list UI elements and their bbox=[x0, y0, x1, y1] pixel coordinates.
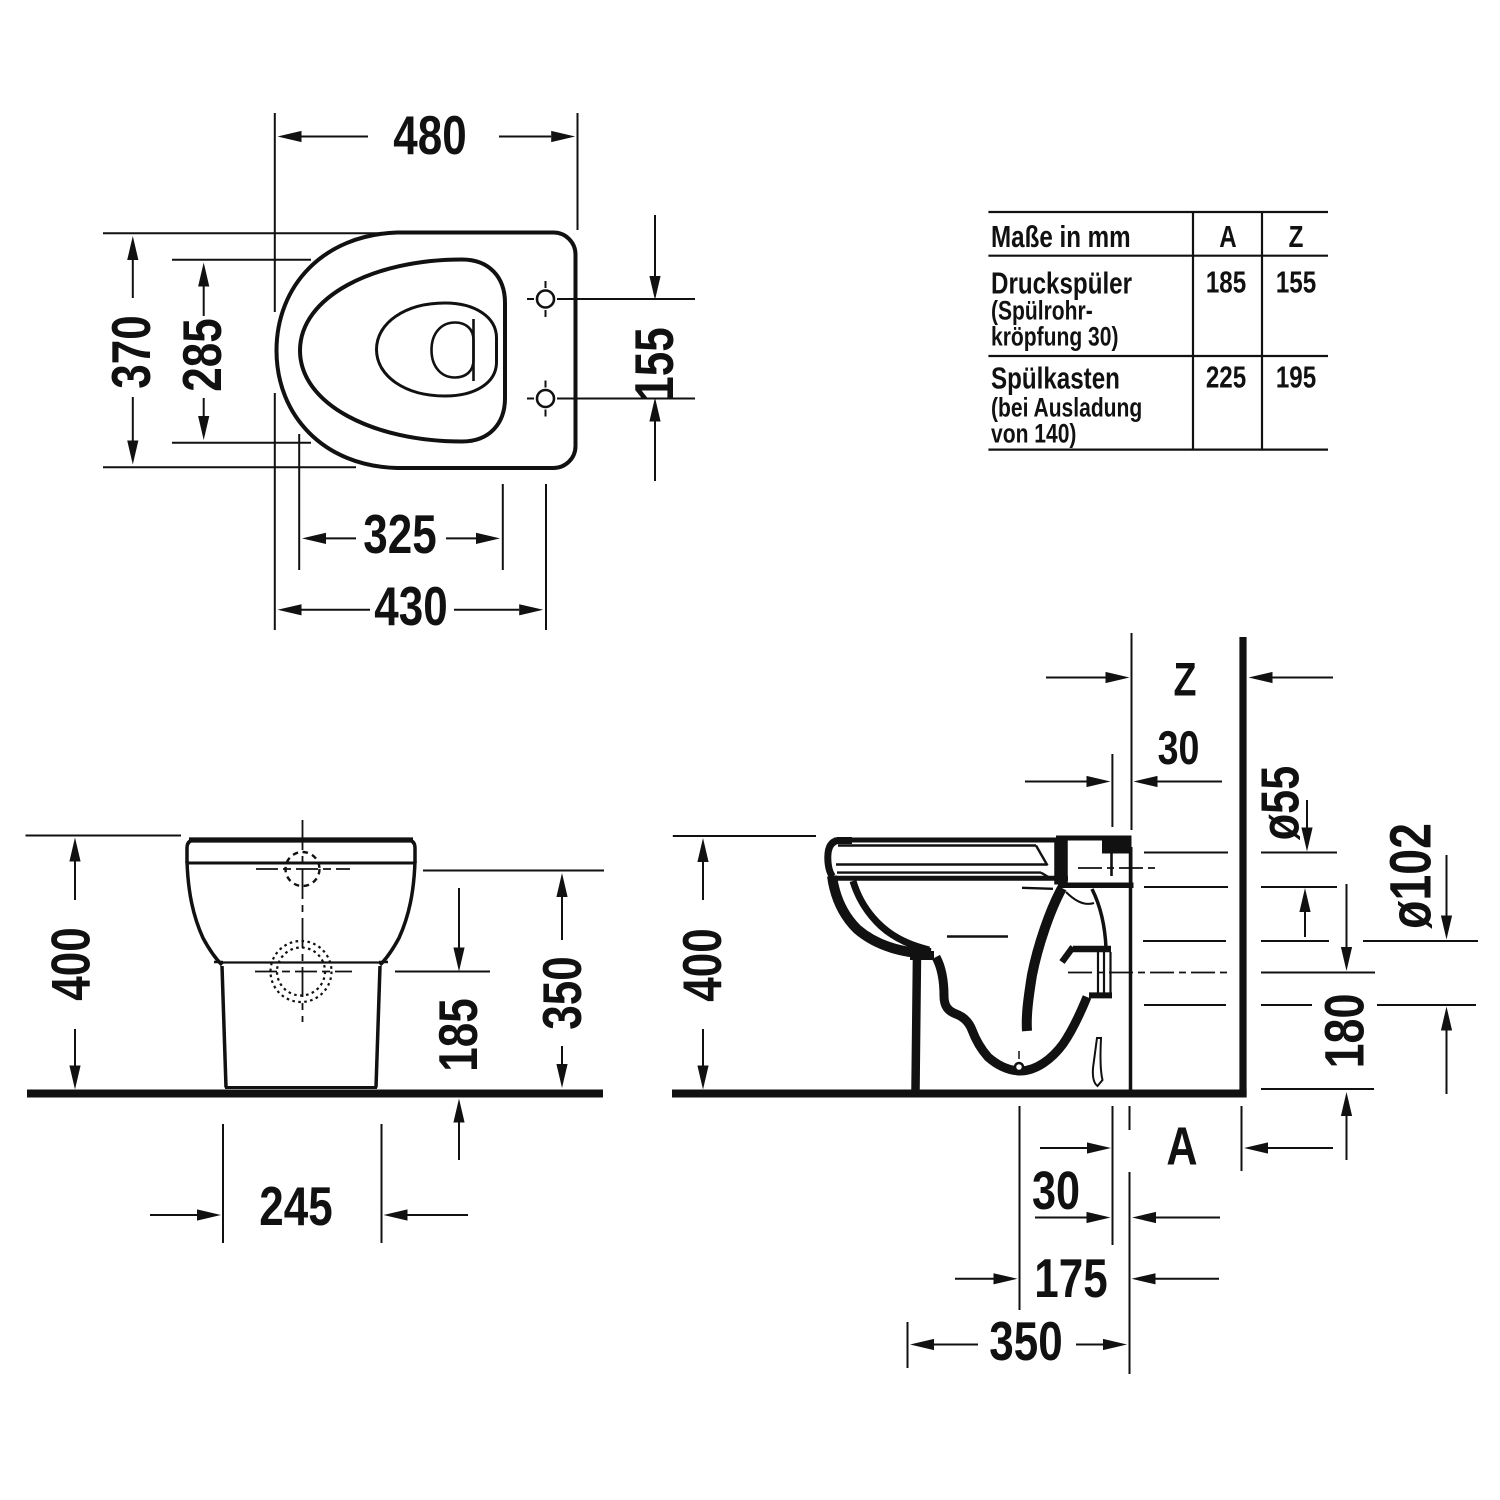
svg-text:185: 185 bbox=[427, 998, 489, 1071]
svg-text:30: 30 bbox=[1158, 722, 1200, 775]
svg-text:A: A bbox=[1166, 1117, 1197, 1177]
svg-text:A: A bbox=[1219, 219, 1236, 254]
svg-text:325: 325 bbox=[363, 503, 436, 565]
svg-text:von 140): von 140) bbox=[991, 419, 1076, 449]
svg-text:180: 180 bbox=[1313, 994, 1376, 1069]
svg-text:Z: Z bbox=[1289, 219, 1304, 254]
svg-text:155: 155 bbox=[1276, 265, 1316, 300]
svg-text:Maße in mm: Maße in mm bbox=[991, 219, 1131, 254]
svg-text:185: 185 bbox=[1206, 265, 1246, 300]
svg-text:350: 350 bbox=[531, 956, 593, 1029]
svg-text:400: 400 bbox=[40, 927, 102, 1000]
svg-text:430: 430 bbox=[374, 575, 447, 637]
svg-text:Druckspüler: Druckspüler bbox=[991, 266, 1132, 301]
svg-text:kröpfung 30): kröpfung 30) bbox=[991, 322, 1118, 352]
svg-text:30: 30 bbox=[1032, 1162, 1080, 1222]
svg-text:285: 285 bbox=[171, 318, 233, 391]
svg-text:195: 195 bbox=[1276, 360, 1316, 395]
svg-text:ø55: ø55 bbox=[1251, 766, 1311, 840]
svg-text:245: 245 bbox=[259, 1175, 332, 1237]
svg-text:400: 400 bbox=[671, 928, 733, 1001]
svg-text:ø102: ø102 bbox=[1378, 823, 1443, 929]
svg-text:155: 155 bbox=[623, 327, 685, 400]
svg-text:370: 370 bbox=[100, 315, 162, 388]
svg-text:225: 225 bbox=[1206, 360, 1246, 395]
svg-text:175: 175 bbox=[1034, 1247, 1107, 1309]
svg-text:Spülkasten: Spülkasten bbox=[991, 361, 1120, 396]
svg-text:Z: Z bbox=[1174, 653, 1197, 706]
svg-text:480: 480 bbox=[393, 104, 466, 166]
svg-text:350: 350 bbox=[989, 1310, 1062, 1372]
